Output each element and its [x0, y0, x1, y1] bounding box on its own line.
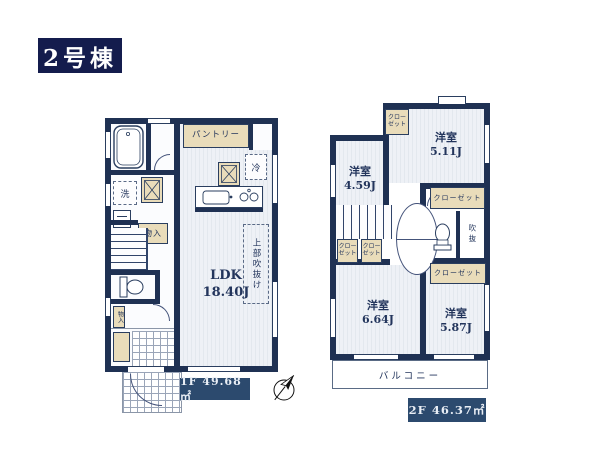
- balcony-label: バルコニー: [379, 368, 441, 382]
- cupboard-icon: [218, 162, 240, 186]
- window: [484, 285, 490, 331]
- window: [484, 125, 490, 163]
- wall: [195, 208, 263, 212]
- wall: [146, 124, 151, 170]
- fridge-space: 冷: [245, 154, 267, 180]
- closet-hall-a-label: クロー ゼット: [338, 244, 356, 258]
- closet-hall-a: クロー ゼット: [337, 239, 358, 263]
- closet-long-top-label: クローゼット: [434, 194, 482, 202]
- ldk-label-text: LDK 18.40J: [203, 268, 250, 302]
- toilet-icon: [119, 276, 145, 298]
- room-sw-text: 洋室 6.64J: [362, 299, 394, 328]
- ldk-room-label: LDK 18.40J: [181, 262, 271, 308]
- vent-bump: [438, 96, 466, 104]
- window: [105, 132, 111, 158]
- storage-small-label: 物入: [116, 311, 123, 323]
- closet-long-top: クローゼット: [430, 187, 485, 209]
- shoe-cabinet: [113, 332, 130, 362]
- room-nw-text: 洋室 4.59J: [344, 165, 376, 194]
- room-se-label: 洋室 5.87J: [430, 303, 482, 339]
- closet-hall-b: クロー ゼット: [361, 239, 382, 263]
- stairs: [336, 205, 393, 239]
- entrance-step-line: [111, 328, 174, 329]
- room-nw-label: 洋室 4.59J: [337, 161, 383, 197]
- void-label: 吹抜: [467, 224, 477, 245]
- wall: [111, 270, 160, 275]
- kitchen-counter-icon: [195, 186, 263, 208]
- cabinet-icon: [113, 210, 131, 228]
- floor1-area-text: 1F 49.68㎡: [180, 375, 250, 404]
- room-ne-label: 洋室 5.11J: [416, 127, 476, 163]
- wall: [111, 220, 138, 225]
- closet-long-bottom: クローゼット: [430, 263, 486, 284]
- building-title: 2号棟: [38, 38, 122, 73]
- fridge-label: 冷: [251, 161, 260, 174]
- entrance-tile: [132, 331, 174, 366]
- floorplan-sheet: 2号棟 洗: [0, 0, 600, 450]
- floor2-area-label: 2F 46.37㎡: [408, 398, 486, 422]
- window: [188, 366, 240, 372]
- stairs: [111, 228, 148, 270]
- balcony: バルコニー: [332, 360, 488, 389]
- wall: [155, 275, 160, 299]
- closet-hall-b-label: クロー ゼット: [362, 244, 380, 258]
- wall: [111, 170, 174, 175]
- storage-small: 物入: [113, 306, 125, 328]
- closet-ne: クロー ゼット: [385, 109, 409, 135]
- wall: [174, 124, 180, 366]
- toilet-icon: [432, 217, 453, 251]
- closet-long-bottom-label: クローゼット: [434, 269, 482, 277]
- washer-space: 洗: [113, 181, 137, 205]
- room-ne-text: 洋室 5.11J: [430, 131, 462, 160]
- window: [330, 165, 336, 197]
- floor1-area-label: 1F 49.68㎡: [180, 378, 250, 400]
- window: [105, 298, 111, 316]
- room-se-text: 洋室 5.87J: [440, 307, 472, 336]
- washer-label: 洗: [120, 187, 129, 200]
- window: [105, 184, 111, 206]
- floor2-area-text: 2F 46.37㎡: [409, 402, 486, 418]
- floor1-plan: 洗 物入: [105, 118, 278, 372]
- pantry-label: パントリー: [192, 131, 240, 141]
- niche-floor: [253, 124, 272, 150]
- compass-icon: [266, 370, 302, 406]
- washbasin-icon: [141, 177, 163, 203]
- floor2-plan: クロー ゼット クローゼット クロー ゼット クロー ゼット クローゼット 吹抜: [330, 103, 490, 395]
- wall: [330, 135, 389, 141]
- window: [272, 282, 278, 337]
- window: [272, 155, 278, 203]
- pantry: パントリー: [183, 124, 249, 148]
- room-sw-label: 洋室 6.64J: [352, 295, 404, 331]
- window: [330, 299, 336, 337]
- closet-ne-label: クロー ゼット: [388, 115, 406, 129]
- void-room: 吹抜: [460, 211, 484, 258]
- bathtub-icon: [113, 125, 144, 169]
- window: [148, 118, 170, 124]
